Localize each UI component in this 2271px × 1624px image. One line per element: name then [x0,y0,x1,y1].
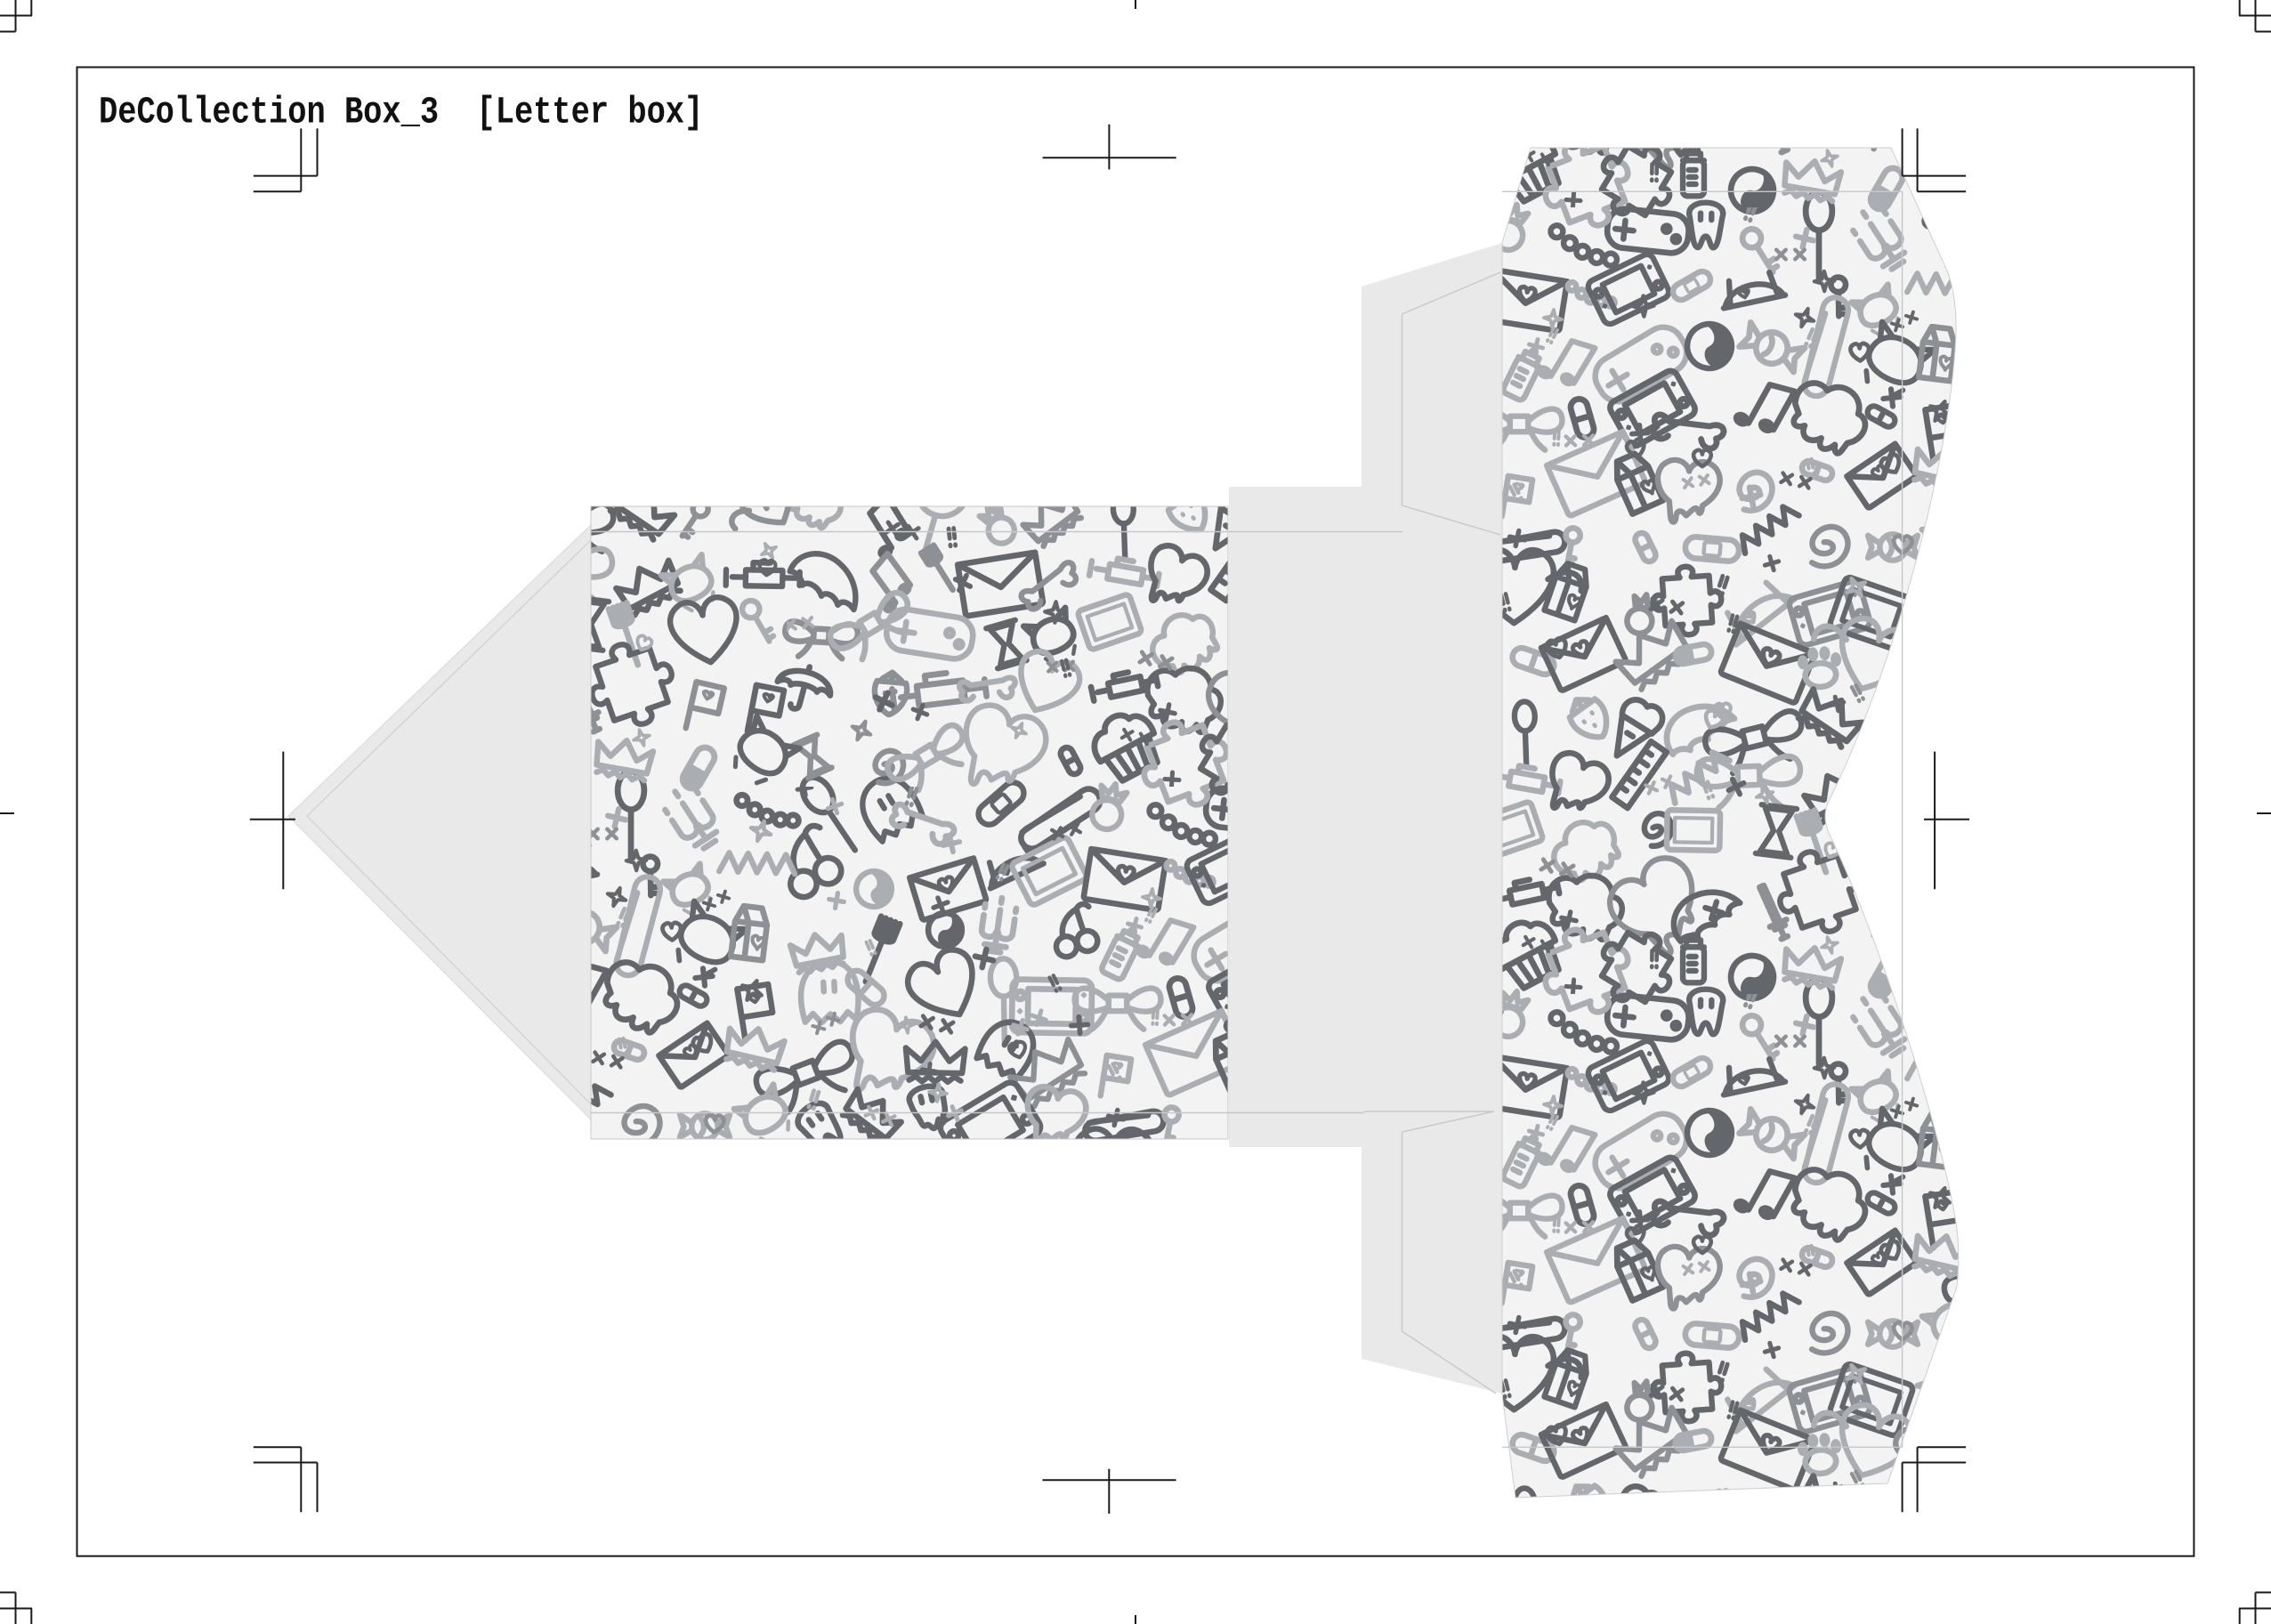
svg-text:DeCollection Box_3 [Letter bo: DeCollection Box_3 [Letter box] [99,90,703,133]
